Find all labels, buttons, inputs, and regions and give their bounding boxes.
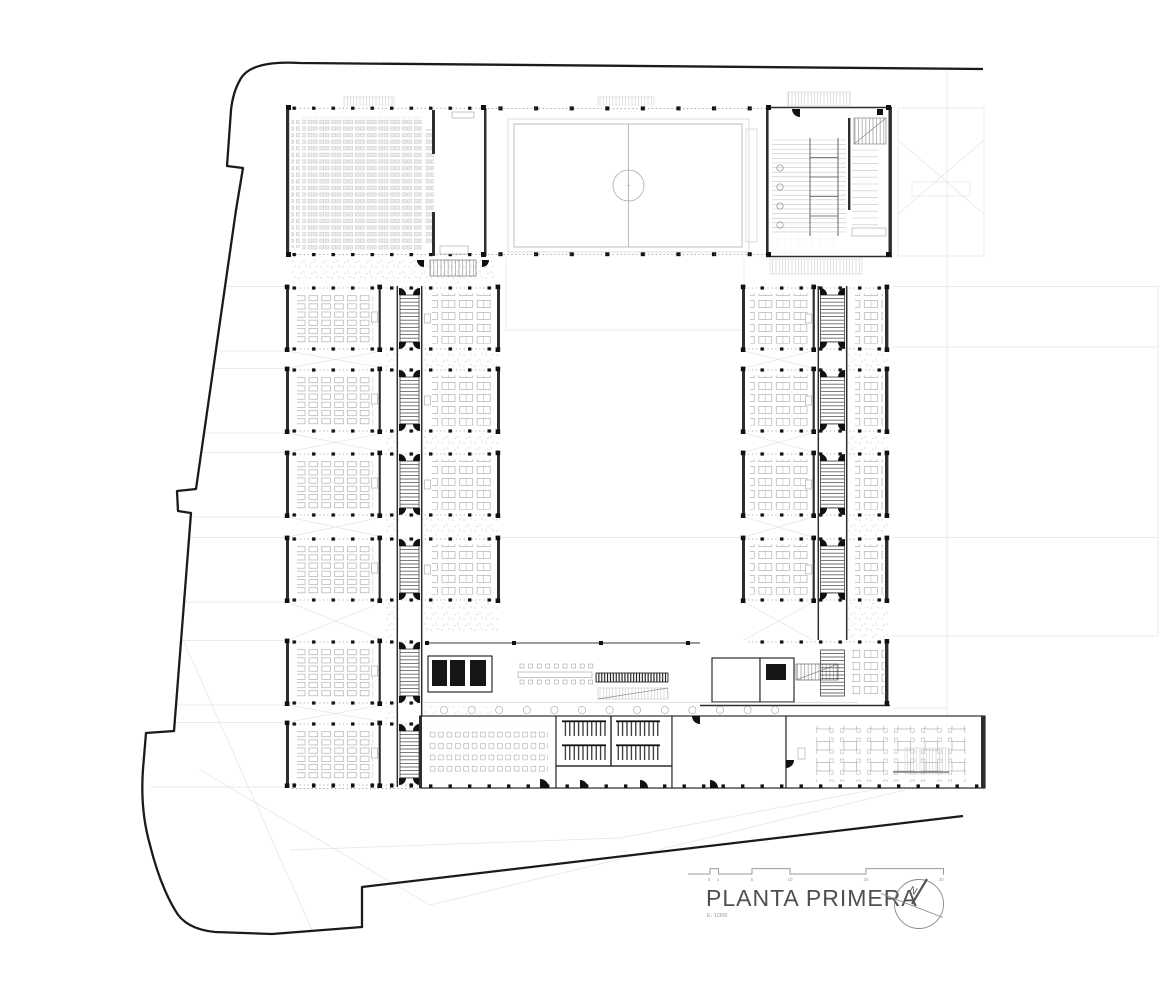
sports-hall [488,106,769,258]
anteroom [672,716,786,788]
classroom-wing-right-4 [741,536,890,603]
classroom-wing-left-1 [285,285,500,352]
scale-tick-0: 0 [708,877,711,882]
classroom-wing-left-4 [285,536,500,603]
classroom-wing-left-2 [285,367,500,434]
classroom-wing-left-3 [285,451,500,518]
scale-tick-5: 5 [751,877,754,882]
exterior-stairs-north [344,92,850,107]
wc-block [556,716,672,788]
stage-platform [440,246,468,254]
classroom-wing-right-2 [741,367,890,434]
classroom-wing-right-1 [741,285,890,352]
admin-block [700,639,890,706]
cafeteria-tables [518,664,593,684]
scale-tick-30: 30 [938,877,944,882]
services-band [423,632,700,706]
corridor-left-floor [399,286,422,787]
drawing-sheet: 0 1 5 10 20 30 PLANTA PRIMERA E: 1/300 N [0,0,1175,1000]
elevator-core [766,664,786,680]
gym-block [766,105,892,258]
scale-tick-10: 10 [787,877,793,882]
classroom-wing-right-3 [741,451,890,518]
serving-counter [596,673,668,682]
auditorium-block [286,105,487,258]
scale-note: E: 1/300 [707,913,728,919]
study-room [786,716,985,788]
title-block: 0 1 5 10 20 30 PLANTA PRIMERA E: 1/300 N [688,869,944,929]
entrance-plaza [292,259,862,283]
scale-bar [688,869,944,875]
plan-title: PLANTA PRIMERA [706,885,918,911]
scale-tick-20: 20 [863,877,869,882]
auditorium-seating [302,117,422,250]
library-room [419,716,556,788]
scale-tick-1: 1 [717,877,720,882]
floor-plan-drawing: 0 1 5 10 20 30 PLANTA PRIMERA E: 1/300 N [0,0,1175,1000]
